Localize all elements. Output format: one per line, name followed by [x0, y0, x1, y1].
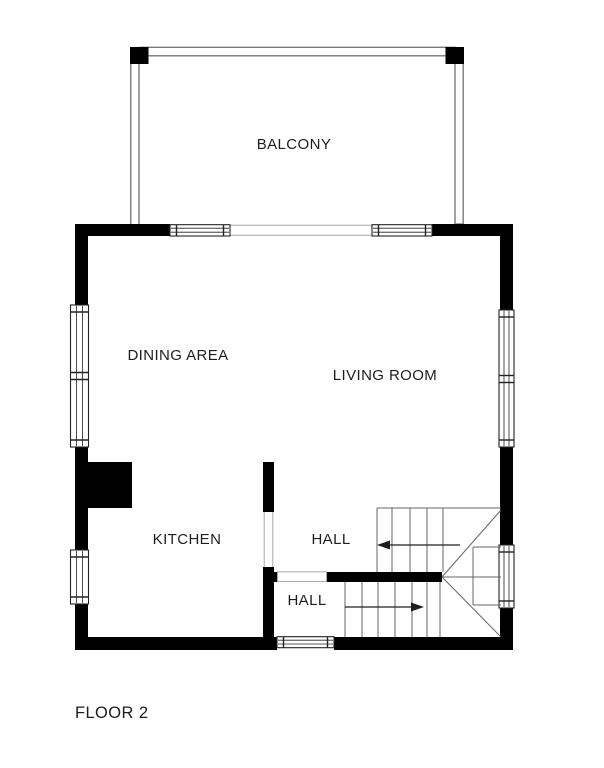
left-wall-mid-segment — [75, 447, 88, 550]
balcony-rail-left — [131, 55, 139, 225]
floor-title: FLOOR 2 — [75, 704, 148, 723]
bottom-wall-right-segment — [334, 637, 513, 650]
balcony-post-left — [130, 47, 149, 64]
interior-walls — [263, 462, 442, 650]
top-wall-left-segment — [75, 224, 170, 236]
bottom-wall-left-segment — [75, 637, 277, 650]
stair-divider-wall — [327, 572, 442, 582]
window-bottom-hall — [277, 637, 334, 648]
upper-flight-arrow-left-icon — [377, 541, 460, 550]
hall-doorway-opening — [278, 572, 327, 582]
right-wall-top-segment — [500, 224, 513, 310]
room-label-hall-lower: HALL — [287, 592, 326, 609]
left-wall-top-segment — [75, 224, 88, 305]
lower-flight-arrow-right-icon — [345, 603, 424, 612]
room-label-hall-upper: HALL — [311, 531, 350, 548]
upper-flight-treads — [392, 508, 443, 572]
lower-flight-treads — [345, 582, 440, 637]
balcony-rail-top — [140, 47, 455, 56]
chimney-block — [88, 462, 132, 508]
room-label-living-room: LIVING ROOM — [333, 367, 437, 384]
room-label-dining-area: DINING AREA — [127, 347, 228, 364]
balcony-post-right — [446, 47, 465, 64]
balcony-opening — [230, 225, 372, 235]
window-left-tall — [71, 305, 89, 447]
hall-divider-stub — [263, 572, 277, 582]
exterior-walls — [75, 224, 513, 650]
room-label-kitchen: KITCHEN — [153, 531, 222, 548]
window-right-stair — [499, 545, 514, 608]
kitchen-hall-wall-upper — [263, 462, 274, 512]
floor-plan-drawing — [0, 0, 604, 768]
window-right-tall — [499, 310, 514, 447]
window-left-kitchen — [71, 550, 89, 604]
floor-plan: BALCONY DINING AREA LIVING ROOM KITCHEN … — [0, 0, 604, 768]
window-top-right — [372, 225, 432, 236]
windows — [71, 225, 515, 648]
right-wall-mid-segment — [500, 447, 513, 545]
room-label-balcony: BALCONY — [257, 136, 332, 153]
balcony-rail-right — [455, 55, 463, 224]
window-top-left — [170, 225, 230, 236]
winder-treads — [442, 510, 501, 637]
